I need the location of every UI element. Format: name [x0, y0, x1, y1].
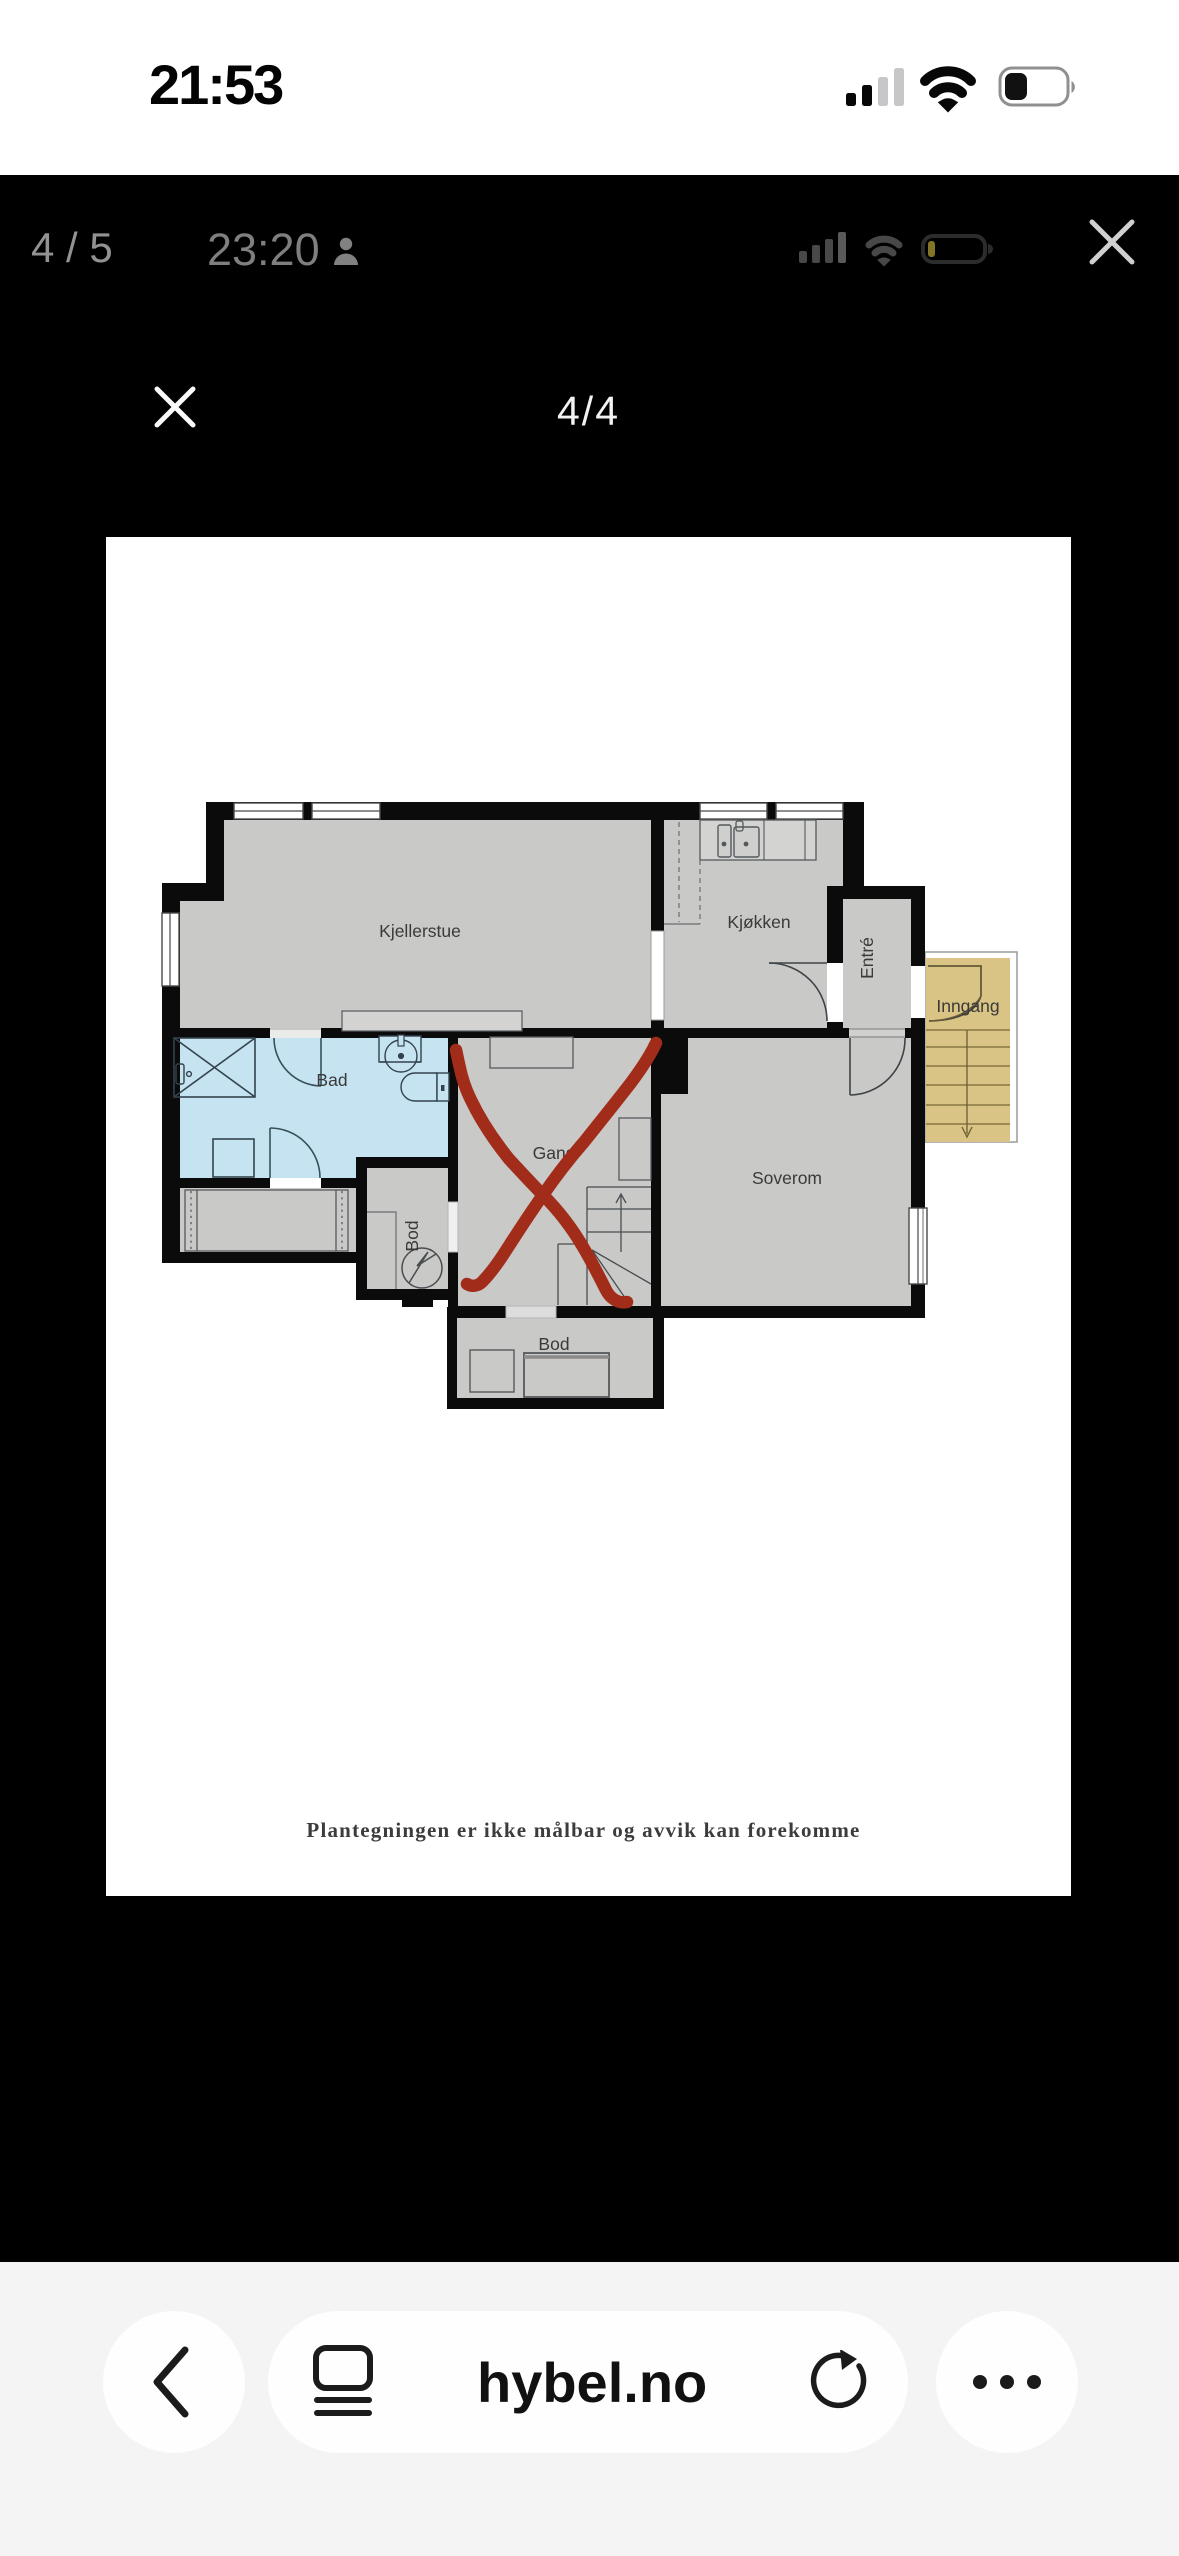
- svg-text:Entré: Entré: [857, 937, 877, 979]
- svg-text:Bod: Bod: [538, 1334, 569, 1354]
- svg-text:Bad: Bad: [316, 1070, 347, 1090]
- svg-text:Bod: Bod: [402, 1220, 422, 1251]
- svg-text:Soverom: Soverom: [752, 1168, 822, 1188]
- svg-text:Kjøkken: Kjøkken: [727, 912, 790, 932]
- svg-text:Inngang: Inngang: [936, 996, 999, 1016]
- svg-text:Kjellerstue: Kjellerstue: [379, 921, 461, 941]
